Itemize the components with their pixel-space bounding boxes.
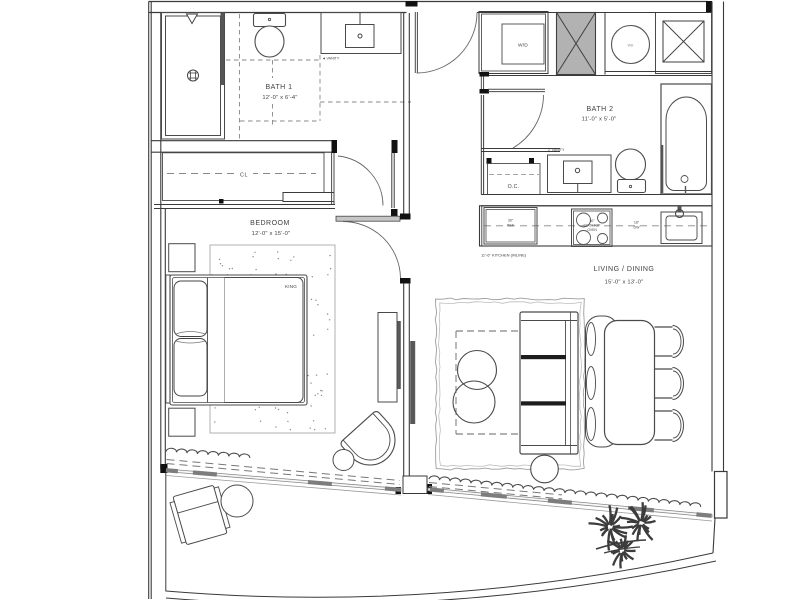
- svg-text:LIVING / DINING: LIVING / DINING: [594, 266, 655, 273]
- svg-text:REF: REF: [507, 224, 515, 228]
- svg-text:◄ VANITY: ◄ VANITY: [322, 57, 340, 61]
- svg-text:O.C.: O.C.: [508, 184, 520, 190]
- svg-text:11'-6" KITCHEN (INLINE): 11'-6" KITCHEN (INLINE): [481, 253, 527, 258]
- svg-text:W/D: W/D: [518, 43, 528, 49]
- svg-text:BATH 2: BATH 2: [587, 106, 614, 113]
- svg-text:18": 18": [634, 221, 640, 225]
- svg-text:2' VANITY: 2' VANITY: [548, 148, 565, 152]
- svg-text:11'-0" x 5'-0": 11'-0" x 5'-0": [582, 117, 617, 123]
- svg-text:12'-0" x 6'-4": 12'-0" x 6'-4": [262, 95, 297, 101]
- svg-text:DW: DW: [634, 226, 641, 230]
- svg-text:30": 30": [590, 219, 596, 223]
- svg-text:KING: KING: [285, 284, 297, 289]
- svg-text:BEDROOM: BEDROOM: [250, 220, 290, 227]
- svg-text:OVEN: OVEN: [587, 228, 597, 232]
- svg-text:COOKTOP: COOKTOP: [584, 224, 602, 228]
- svg-text:15'-0" x 13'-0": 15'-0" x 13'-0": [605, 280, 644, 286]
- svg-text:12'-0" x 15'-0": 12'-0" x 15'-0": [252, 231, 291, 237]
- svg-text:WH: WH: [628, 44, 634, 48]
- svg-text:30": 30": [508, 219, 514, 223]
- svg-text:BATH 1: BATH 1: [266, 84, 293, 91]
- svg-text:CL: CL: [240, 173, 248, 179]
